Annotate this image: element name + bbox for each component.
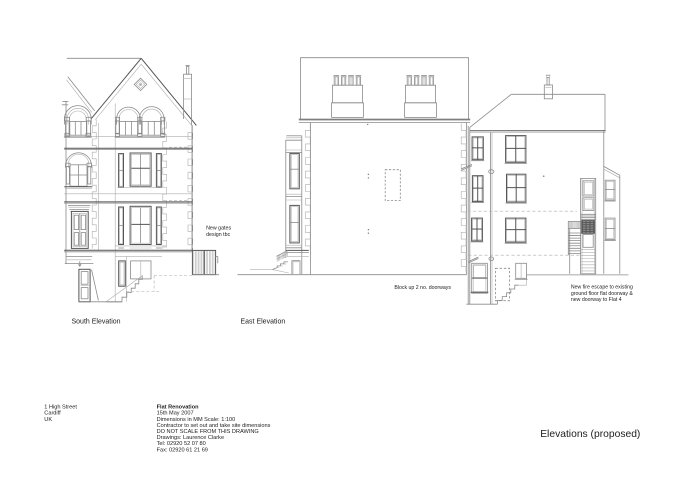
svg-text:South Elevation: South Elevation [72,319,121,326]
svg-text:Dimensions in MM Scale: 1:10: Dimensions in MM Scale: 1:100 [157,417,236,423]
svg-text:Block up 2 no. doorways: Block up 2 no. doorways [394,285,451,291]
svg-text:15th May 2007: 15th May 2007 [157,411,194,417]
svg-text:UK: UK [44,417,52,423]
svg-text:Cardiff: Cardiff [44,411,61,417]
svg-text:design tbc: design tbc [206,232,230,238]
svg-text:DO NOT SCALE FROM THIS DRAWING: DO NOT SCALE FROM THIS DRAWING [157,429,259,435]
svg-text:new doorway to Flat 4: new doorway to Flat 4 [571,297,622,303]
svg-text:1 High Street: 1 High Street [44,405,77,411]
svg-text:Contractor to set out and take: Contractor to set out and take site dime… [157,423,271,429]
svg-text:New fire escape to existing: New fire escape to existing [571,285,633,291]
svg-text:Fax: 02920 61 21 69: Fax: 02920 61 21 69 [157,447,208,453]
svg-text:Flat Renovation: Flat Renovation [157,405,200,411]
svg-text:East Elevation: East Elevation [241,319,286,326]
svg-text:Elevations (proposed): Elevations (proposed) [540,429,640,440]
svg-text:Drawings: Laurence Clarke: Drawings: Laurence Clarke [157,435,224,441]
svg-text:Tel: 02920 52 07 80: Tel: 02920 52 07 80 [157,441,206,447]
svg-text:New gates: New gates [206,226,231,232]
svg-text:ground floor flat doorway &: ground floor flat doorway & [571,291,634,297]
